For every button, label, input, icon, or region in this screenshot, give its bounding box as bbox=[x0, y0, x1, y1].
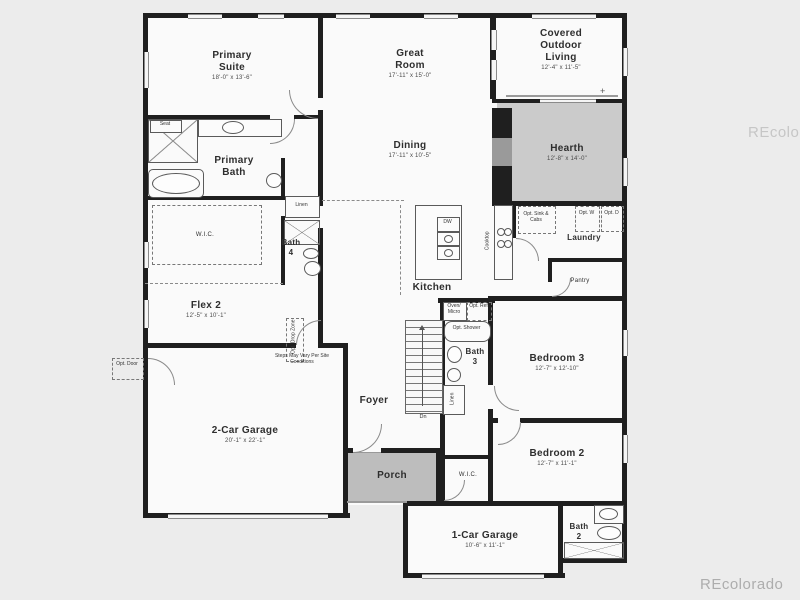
wall-segment bbox=[381, 448, 441, 453]
ceiling-break-line bbox=[400, 205, 401, 295]
primary-suite-name: Primary Suite bbox=[204, 50, 260, 74]
garage-2-name: 2-Car Garage bbox=[190, 425, 300, 437]
toilet bbox=[266, 173, 282, 188]
primary-suite-label: Primary Suite 18'-0" x 13'-6" bbox=[204, 50, 260, 81]
garage-1-dims: 10'-6" x 11'-1" bbox=[430, 543, 540, 549]
great-room-label: Great Room 17'-11" x 15'-0" bbox=[384, 48, 436, 79]
bedroom-2-dims: 12'-7" x 11'-1" bbox=[512, 461, 602, 467]
bedroom-2-label: Bedroom 2 12'-7" x 11'-1" bbox=[512, 448, 602, 467]
window bbox=[623, 48, 628, 76]
hearth-name: Hearth bbox=[536, 143, 598, 155]
watermark-side: REcolorado bbox=[748, 124, 800, 141]
bedroom-3-label: Bedroom 3 12'-7" x 12'-10" bbox=[512, 353, 602, 372]
wall-segment bbox=[343, 448, 353, 453]
window bbox=[623, 330, 628, 356]
primary-bath-label: Primary Bath bbox=[208, 155, 260, 179]
kitchen-name: Kitchen bbox=[406, 282, 458, 294]
fireplace-wall bbox=[492, 108, 512, 138]
sink bbox=[444, 249, 453, 257]
foyer-name: Foyer bbox=[348, 395, 400, 407]
sliding-door bbox=[540, 99, 596, 103]
wall-segment bbox=[143, 343, 296, 348]
dining-name: Dining bbox=[378, 140, 442, 152]
window bbox=[623, 435, 628, 463]
wic-2-name: W.I.C. bbox=[448, 472, 488, 479]
covered-outdoor-name: Covered Outdoor Living bbox=[530, 28, 592, 64]
sink bbox=[444, 235, 453, 243]
cooktop-label: Cooktop bbox=[485, 221, 491, 261]
window bbox=[336, 14, 370, 19]
pantry-name: Pantry bbox=[560, 278, 600, 285]
dining-dims: 17'-11" x 10'-5" bbox=[378, 153, 442, 159]
sink bbox=[303, 248, 319, 259]
wall-segment bbox=[318, 343, 348, 348]
opt-washer-label: Opt. W bbox=[575, 211, 598, 217]
wall-segment bbox=[622, 13, 627, 563]
opt-ref-label: Opt. Ref bbox=[467, 304, 490, 310]
watermark-corner: REcolorado bbox=[700, 576, 783, 593]
wall-segment bbox=[488, 296, 627, 301]
seat-label: Seat bbox=[150, 122, 180, 128]
window bbox=[144, 52, 149, 88]
fireplace-wall bbox=[492, 166, 512, 201]
window bbox=[532, 14, 596, 19]
window bbox=[424, 14, 458, 19]
garage-1-name: 1-Car Garage bbox=[430, 530, 540, 542]
fireplace bbox=[492, 138, 512, 166]
sink bbox=[222, 121, 244, 134]
flex-2-label: Flex 2 12'-5" x 10'-1" bbox=[174, 300, 238, 319]
stairs-dn-label: Dn bbox=[415, 414, 431, 420]
garage-2-label: 2-Car Garage 20'-1" x 22'-1" bbox=[190, 425, 300, 444]
hearth-label: Hearth 12'-8" x 14'-0" bbox=[536, 143, 598, 162]
window bbox=[144, 300, 149, 328]
toilet bbox=[304, 261, 321, 276]
bath-2-name: Bath 2 bbox=[566, 522, 592, 541]
steps-note: Steps May Vary Per Site Conditions bbox=[270, 354, 334, 365]
hearth-dims: 12'-8" x 14'-0" bbox=[536, 156, 598, 162]
wall-segment bbox=[488, 409, 493, 418]
window bbox=[258, 14, 284, 19]
opt-dryer-label: Opt. D bbox=[601, 211, 622, 217]
kitchen-label: Kitchen bbox=[406, 282, 458, 294]
linen-label: Linen bbox=[285, 203, 318, 209]
dishwasher-label: DW bbox=[437, 220, 458, 226]
bath-4-label: Bath 4 bbox=[278, 238, 304, 257]
wic-primary-label: W.I.C. bbox=[180, 232, 230, 239]
ceiling-break-line bbox=[145, 283, 283, 284]
stairs bbox=[405, 320, 443, 414]
covered-outdoor-label: Covered Outdoor Living 12'-4" x 11'-5" bbox=[530, 28, 592, 71]
dining-label: Dining 17'-11" x 10'-5" bbox=[378, 140, 442, 159]
tub-basin bbox=[152, 173, 200, 194]
wall-segment bbox=[440, 455, 490, 459]
garage-2-dims: 20'-1" x 22'-1" bbox=[190, 438, 300, 444]
great-room-dims: 17'-11" x 15'-0" bbox=[384, 73, 436, 79]
ceiling-break-line bbox=[322, 200, 404, 201]
burner bbox=[504, 240, 512, 248]
opt-sink-cabs-label: Opt. Sink & Cabs bbox=[518, 212, 554, 223]
primary-suite-dims: 18'-0" x 13'-6" bbox=[204, 75, 260, 81]
pantry-label: Pantry bbox=[560, 278, 600, 285]
wic-primary-name: W.I.C. bbox=[180, 232, 230, 239]
bedroom-3-dims: 12'-7" x 12'-10" bbox=[512, 366, 602, 372]
wall-segment bbox=[318, 110, 323, 206]
linen-hall-label: Linen bbox=[450, 388, 456, 410]
stairs-arrow-head bbox=[419, 325, 425, 330]
wall-segment bbox=[520, 418, 627, 423]
bedroom-2-name: Bedroom 2 bbox=[512, 448, 602, 460]
floor-plan: Seat Linen DW Cooktop Oven/ Micro Opt. R… bbox=[0, 0, 800, 600]
wall-segment bbox=[490, 13, 496, 99]
oven-micro-label: Oven/ Micro bbox=[443, 304, 465, 315]
garage-door-opening bbox=[422, 574, 544, 579]
wall-segment bbox=[488, 418, 498, 423]
wall-segment bbox=[548, 258, 627, 262]
opt-drop-zone-label: Opt. Drop Zone bbox=[291, 316, 297, 358]
foyer-label: Foyer bbox=[348, 395, 400, 407]
wall-segment bbox=[403, 501, 408, 578]
toilet bbox=[447, 346, 462, 363]
garage-door-opening bbox=[168, 514, 328, 519]
burner bbox=[504, 228, 512, 236]
bath-2-label: Bath 2 bbox=[566, 522, 592, 541]
porch-label: Porch bbox=[362, 470, 422, 482]
wall-segment bbox=[343, 343, 348, 518]
bath-3-name: Bath 3 bbox=[462, 347, 488, 366]
window bbox=[491, 60, 497, 80]
bath2-shower bbox=[564, 542, 624, 559]
stairs-arrow-line bbox=[422, 330, 423, 406]
primary-bath-name: Primary Bath bbox=[208, 155, 260, 179]
toilet bbox=[597, 526, 621, 540]
great-room-name: Great Room bbox=[384, 48, 436, 72]
sink bbox=[599, 508, 618, 520]
bath-4-name: Bath 4 bbox=[278, 238, 304, 257]
plus-marker: + bbox=[600, 86, 605, 96]
sink bbox=[447, 368, 461, 382]
window bbox=[144, 242, 149, 268]
covered-outdoor-dims: 12'-4" x 11'-5" bbox=[530, 65, 592, 71]
flex-2-name: Flex 2 bbox=[174, 300, 238, 312]
opt-shower-label: Opt. Shower bbox=[448, 326, 485, 332]
bath-3-label: Bath 3 bbox=[462, 347, 488, 366]
wall-segment bbox=[318, 13, 323, 98]
garage-1-label: 1-Car Garage 10'-6" x 11'-1" bbox=[430, 530, 540, 549]
wic-2-label: W.I.C. bbox=[448, 472, 488, 479]
laundry-label: Laundry bbox=[556, 233, 612, 243]
window bbox=[491, 30, 497, 50]
wall-segment bbox=[558, 501, 563, 578]
porch-name: Porch bbox=[362, 470, 422, 482]
window bbox=[188, 14, 222, 19]
opt-door-label: Opt. Door bbox=[112, 362, 142, 368]
wall-segment bbox=[488, 423, 493, 505]
bedroom-3-name: Bedroom 3 bbox=[512, 353, 602, 365]
laundry-name: Laundry bbox=[556, 233, 612, 243]
porch-edge bbox=[347, 501, 407, 503]
flex-2-dims: 12'-5" x 10'-1" bbox=[174, 313, 238, 319]
window bbox=[623, 158, 628, 186]
